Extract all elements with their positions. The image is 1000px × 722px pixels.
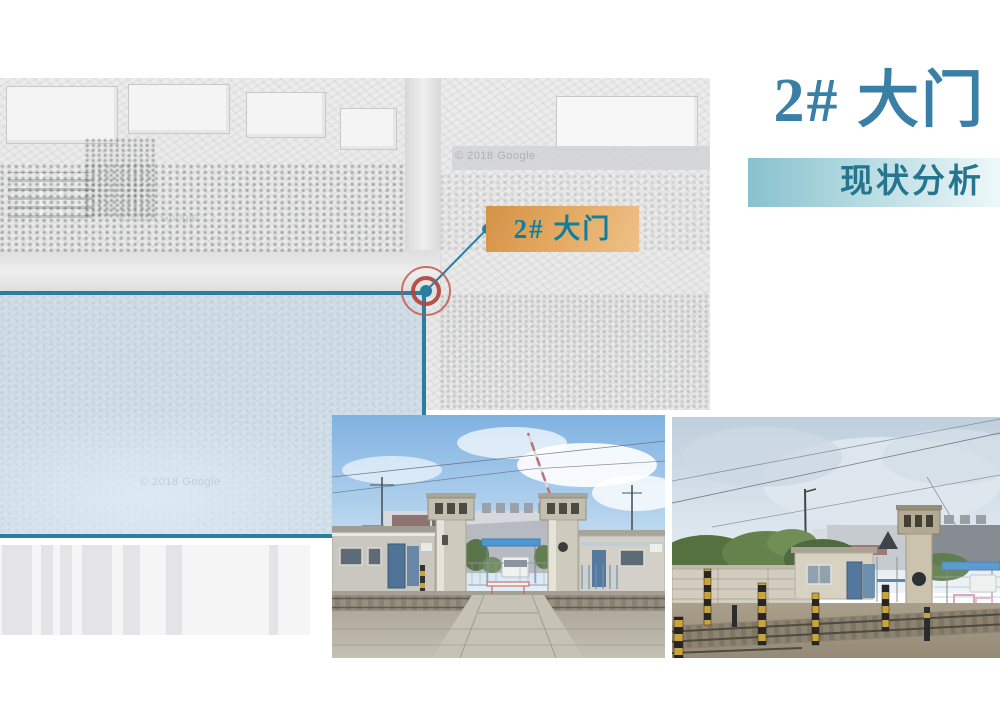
barcode-stripe (123, 545, 140, 635)
map-building (556, 96, 698, 150)
gate-map-label: 2# 大门 (486, 206, 639, 252)
map-building (128, 84, 230, 134)
map-road-horizontal (0, 250, 440, 294)
photo-gate-side (672, 417, 1000, 658)
photo-gate-front (332, 415, 665, 658)
map-tree-cluster (85, 138, 155, 218)
slide: © 2018 Google © 2018 Google © 2018 Googl… (0, 0, 1000, 722)
page-title: 2# 大门 (700, 66, 985, 137)
map-watermark: © 2018 Google (118, 212, 199, 224)
subtitle-text: 现状分析 (748, 158, 1000, 207)
gate-front-photo-art (332, 415, 665, 658)
barcode-stripe (82, 545, 112, 635)
barcode-stripe (2, 545, 32, 635)
barcode-stripe (269, 545, 278, 635)
map-trees (440, 294, 710, 410)
map-building (246, 92, 326, 138)
barcode-stripe (60, 545, 72, 635)
subtitle-bar: 现状分析 (748, 158, 1000, 207)
gate-side-photo-art (672, 417, 1000, 658)
map-building (340, 108, 397, 150)
barcode-stripes (0, 545, 310, 635)
map-watermark: © 2018 Google (455, 150, 536, 162)
barcode-stripe (166, 545, 182, 635)
map-treeline (0, 164, 404, 252)
map-building (6, 86, 118, 144)
barcode-stripe (41, 545, 53, 635)
